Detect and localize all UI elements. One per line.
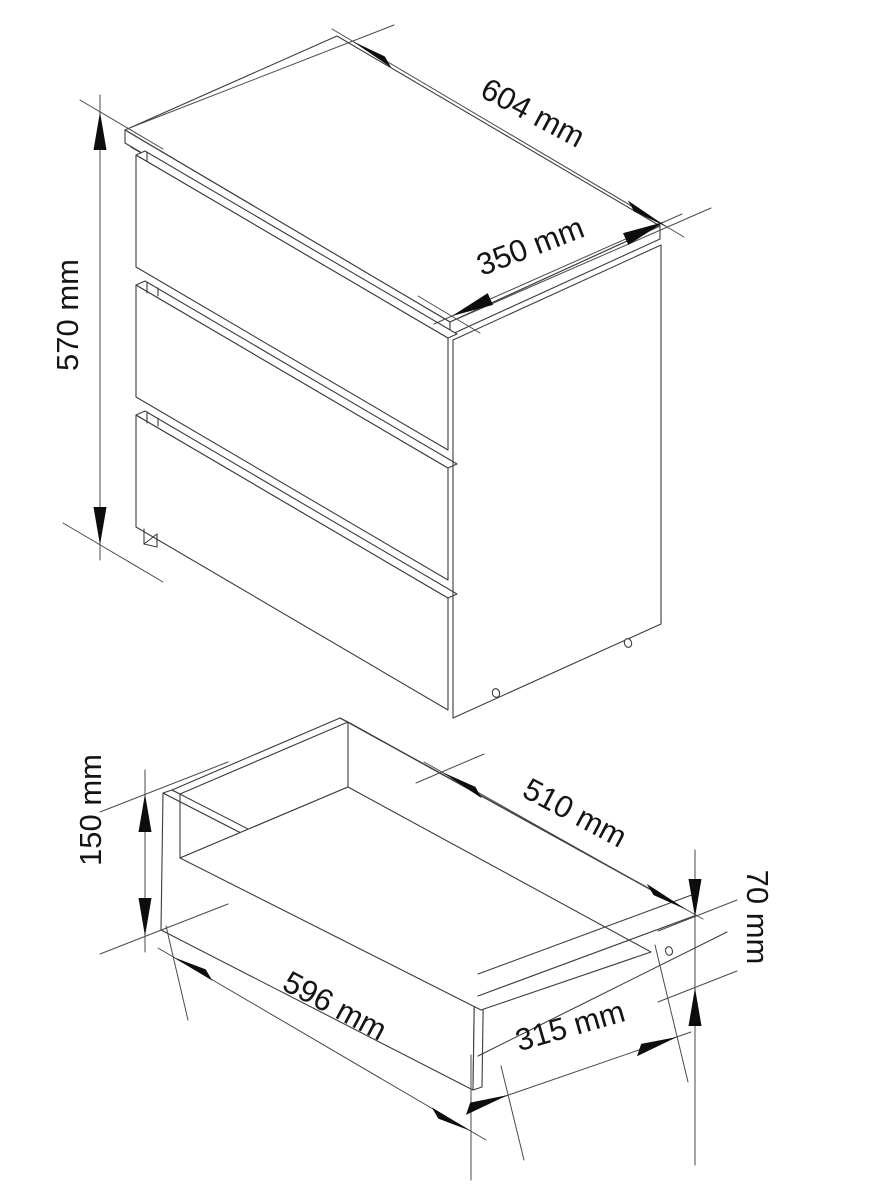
side-panel-bottom-edge bbox=[453, 624, 661, 718]
arrowhead bbox=[139, 794, 152, 832]
dim-label-drawer-depth: 315 mm bbox=[511, 994, 628, 1059]
dim-label-drawer-inner-width: 510 mm bbox=[517, 771, 632, 854]
drawer-cam-lock-hole bbox=[665, 946, 674, 956]
technical-drawing-page: 604 mm 350 mm 570 mm bbox=[0, 0, 875, 1200]
dim-label-drawer-side-height: 70 mm bbox=[740, 870, 775, 965]
furniture-dimension-drawing: 604 mm 350 mm 570 mm bbox=[0, 0, 875, 1200]
arrowhead bbox=[466, 1095, 508, 1115]
cam-lock-hole-upper bbox=[623, 638, 633, 649]
extension-line bbox=[658, 900, 737, 931]
extension-line bbox=[655, 945, 688, 1082]
dim-label-cabinet-height: 570 mm bbox=[50, 259, 85, 371]
dimension-drawer-side-height: 70 mm bbox=[658, 850, 775, 1165]
left-side-top-edge bbox=[172, 718, 348, 794]
arrowhead bbox=[94, 112, 107, 150]
arrowhead bbox=[689, 879, 702, 917]
drawer-isometric-drawing: 150 mm 596 mm 510 mm bbox=[73, 718, 775, 1180]
arrowhead bbox=[94, 507, 107, 545]
extension-line bbox=[658, 971, 737, 1002]
arrowhead bbox=[637, 1037, 677, 1056]
extension-line bbox=[501, 1066, 524, 1160]
arrowhead bbox=[689, 988, 702, 1026]
dim-label-drawer-front-height: 150 mm bbox=[73, 754, 108, 866]
cabinet-isometric-drawing: 604 mm 350 mm 570 mm bbox=[50, 25, 711, 718]
arrowhead bbox=[139, 898, 152, 936]
